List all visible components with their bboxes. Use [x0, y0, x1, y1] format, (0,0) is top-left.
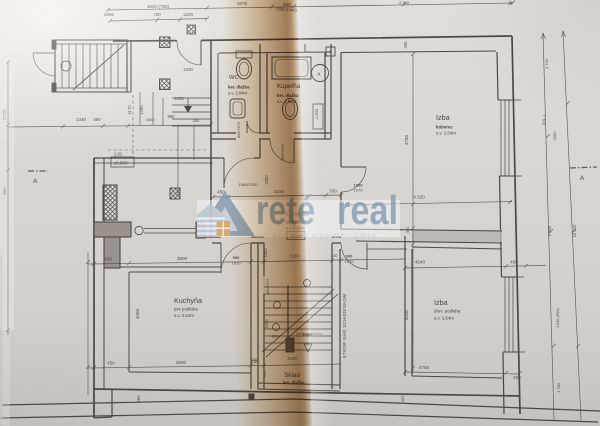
svg-text:4780: 4780	[404, 134, 409, 145]
svg-text:1970: 1970	[345, 259, 355, 264]
svg-text:s.v. 2,64m: s.v. 2,64m	[436, 131, 456, 136]
svg-text:s.v. 2,64m: s.v. 2,64m	[174, 313, 194, 318]
svg-text:4460: 4460	[135, 308, 140, 319]
svg-text:350: 350	[405, 226, 410, 233]
svg-text:Izba: Izba	[434, 298, 448, 307]
svg-text:2690: 2690	[552, 131, 557, 141]
svg-text:3800: 3800	[177, 256, 188, 261]
svg-text:s.v. 2,64m: s.v. 2,64m	[434, 316, 454, 321]
svg-text:450: 450	[403, 41, 408, 49]
svg-text:4540: 4540	[415, 260, 426, 265]
svg-text:450: 450	[510, 260, 518, 265]
svg-text:real: real	[337, 187, 398, 233]
svg-text:4750: 4750	[419, 365, 430, 370]
svg-text:DVL 1: DVL 1	[542, 115, 546, 125]
svg-text:1440 (890): 1440 (890)	[555, 308, 560, 328]
svg-text:A: A	[580, 175, 585, 182]
svg-text:Izba: Izba	[436, 113, 450, 122]
svg-text:2 160: 2 160	[399, 0, 410, 5]
svg-text:4 520: 4 520	[413, 195, 425, 200]
svg-text:450: 450	[513, 375, 521, 380]
svg-text:drev. podlaha: drev. podlaha	[434, 309, 461, 314]
svg-text:pvc podlaha: pvc podlaha	[174, 307, 198, 312]
svg-text:450: 450	[136, 395, 141, 403]
svg-text:900: 900	[346, 254, 353, 259]
svg-text:1 740: 1 740	[544, 58, 549, 69]
svg-text:2 860: 2 860	[547, 225, 552, 236]
svg-text:450: 450	[104, 257, 112, 262]
svg-text:4500: 4500	[404, 309, 409, 320]
svg-text:330: 330	[331, 253, 338, 258]
svg-text:3800: 3800	[176, 360, 187, 365]
svg-text:1 780: 1 780	[556, 382, 561, 393]
svg-text:STROP NAD SCHODISKOM: STROP NAD SCHODISKOM	[342, 294, 347, 359]
svg-text:koberec: koberec	[436, 125, 453, 130]
svg-text:450: 450	[400, 395, 405, 402]
svg-text:450: 450	[107, 361, 115, 366]
svg-text:10 540: 10 540	[572, 224, 577, 237]
